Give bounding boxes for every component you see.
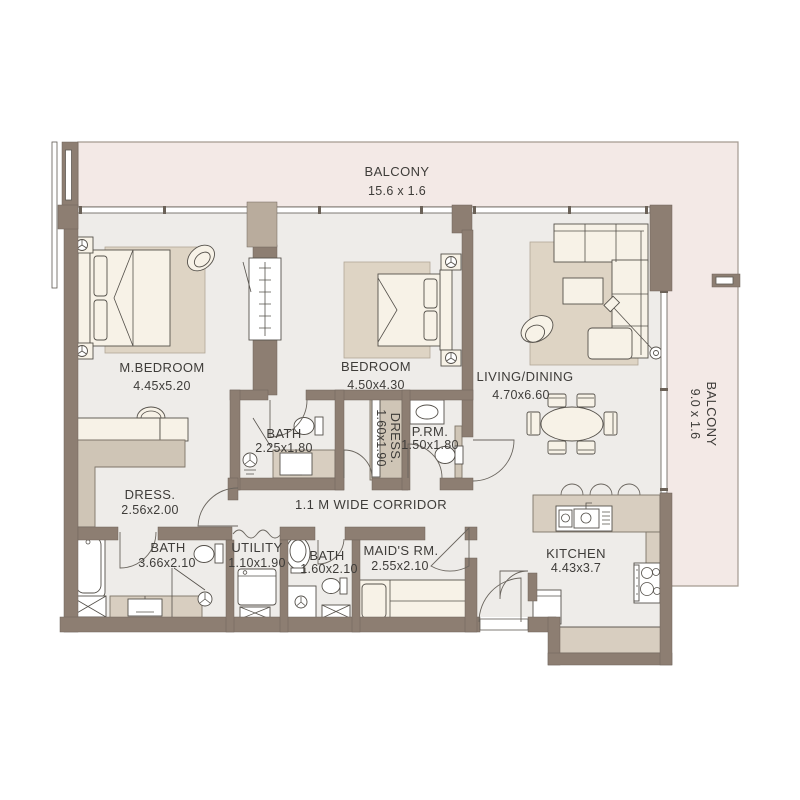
powder-room-dims: 1.50x1.80 bbox=[401, 438, 459, 452]
living-dining-dims: 4.70x6.60 bbox=[492, 388, 550, 402]
dining-chair bbox=[577, 441, 595, 454]
m-bedroom-label: M.BEDROOM bbox=[119, 360, 204, 375]
master-bath-label: BATH bbox=[266, 426, 301, 441]
kitchen-label: KITCHEN bbox=[546, 546, 606, 561]
kitchen-basin bbox=[574, 509, 599, 528]
balcony-right-dims: 9.0 x 1.6 bbox=[688, 389, 702, 440]
corner-block bbox=[58, 205, 78, 229]
bedrooms-column bbox=[247, 202, 277, 247]
entry-stub bbox=[528, 573, 537, 601]
m-dresser-side bbox=[160, 418, 188, 441]
m-bed-pillow bbox=[94, 300, 107, 340]
kitchen-back-ledge bbox=[558, 627, 662, 653]
balcony-top-dims: 15.6 x 1.6 bbox=[368, 184, 426, 198]
m-bed-pillow bbox=[94, 256, 107, 296]
powder-room-label: P.RM. bbox=[412, 424, 448, 439]
floor-plan-drawing: BALCONY 15.6 x 1.6 BALCONY 9.0 x 1.6 M.B… bbox=[0, 0, 800, 800]
dining-table bbox=[541, 407, 603, 441]
dining-chair bbox=[527, 412, 540, 435]
kitchen-bottom-wall bbox=[548, 653, 672, 665]
toilet-tank bbox=[315, 417, 323, 435]
left-balcony-fin bbox=[52, 142, 57, 288]
corridor-label: 1.1 M WIDE CORRIDOR bbox=[295, 497, 447, 512]
prm-basin bbox=[416, 405, 438, 419]
sofa-top bbox=[554, 224, 648, 262]
kitchen-dims: 4.43x3.7 bbox=[551, 561, 601, 575]
family-bath-label: BATH bbox=[150, 540, 185, 555]
bed-headboard bbox=[440, 270, 452, 350]
m-bedroom-dims: 4.45x5.20 bbox=[133, 379, 191, 393]
coffee-table bbox=[563, 278, 603, 304]
m-dresser bbox=[72, 418, 160, 441]
m-bed-headboard bbox=[78, 250, 90, 346]
kitchen-east-wall bbox=[660, 493, 672, 665]
dining-chair bbox=[548, 441, 566, 454]
dress-master-dims: 2.56x2.00 bbox=[121, 503, 179, 517]
utility-label: UTILITY bbox=[231, 540, 282, 555]
master-bath-dims: 2.25x1.80 bbox=[255, 441, 313, 455]
utility-dims: 1.10x1.90 bbox=[228, 556, 286, 570]
maid-toilet-tank bbox=[340, 578, 347, 594]
right-window-wall bbox=[661, 290, 667, 493]
bedroom-label: BEDROOM bbox=[341, 359, 411, 374]
bedroom-living-wall bbox=[462, 230, 473, 437]
dining-chair bbox=[577, 394, 595, 407]
family-bath-dims: 3.66x2.10 bbox=[138, 556, 196, 570]
sofa-chaise bbox=[588, 328, 632, 359]
dining-chair bbox=[604, 412, 617, 435]
maid-bed-pillow bbox=[362, 584, 386, 618]
top-right-column bbox=[650, 205, 672, 291]
bedroom-dims: 4.50x4.30 bbox=[347, 378, 405, 392]
dining-chair bbox=[548, 394, 566, 407]
maid-bath-dims: 1.60x2.10 bbox=[300, 562, 358, 576]
bed-pillow bbox=[424, 311, 437, 340]
maid-toilet-bowl bbox=[322, 579, 340, 594]
left-wall bbox=[64, 205, 78, 632]
bath2-toilet-tank bbox=[215, 544, 223, 563]
bed-pillow bbox=[424, 279, 437, 308]
bath2-toilet-bowl bbox=[194, 546, 214, 563]
vanity-sink bbox=[280, 453, 312, 475]
bedroom-living-column bbox=[452, 205, 472, 233]
dress-small-dims: 1.60x1.90 bbox=[374, 409, 388, 467]
kitchen-counter-leg bbox=[646, 532, 660, 565]
balcony-right-label: BALCONY bbox=[704, 382, 719, 447]
dress-master-label: DRESS. bbox=[125, 487, 176, 502]
bath2-sink bbox=[128, 599, 162, 616]
maids-room-dims: 2.55x2.10 bbox=[371, 559, 429, 573]
living-dining-label: LIVING/DINING bbox=[477, 369, 574, 384]
maid-bath-label: BATH bbox=[309, 548, 344, 563]
washing-machine bbox=[238, 569, 276, 605]
balcony-top-label: BALCONY bbox=[365, 164, 430, 179]
dress-small-label-group: DRESS. 1.60x1.90 bbox=[374, 409, 403, 467]
maids-room-label: MAID'S RM. bbox=[363, 543, 438, 558]
bottom-wall bbox=[60, 617, 480, 632]
maids-room-furniture bbox=[358, 580, 470, 622]
floor-plan-page: BALCONY 15.6 x 1.6 BALCONY 9.0 x 1.6 M.B… bbox=[0, 0, 800, 800]
